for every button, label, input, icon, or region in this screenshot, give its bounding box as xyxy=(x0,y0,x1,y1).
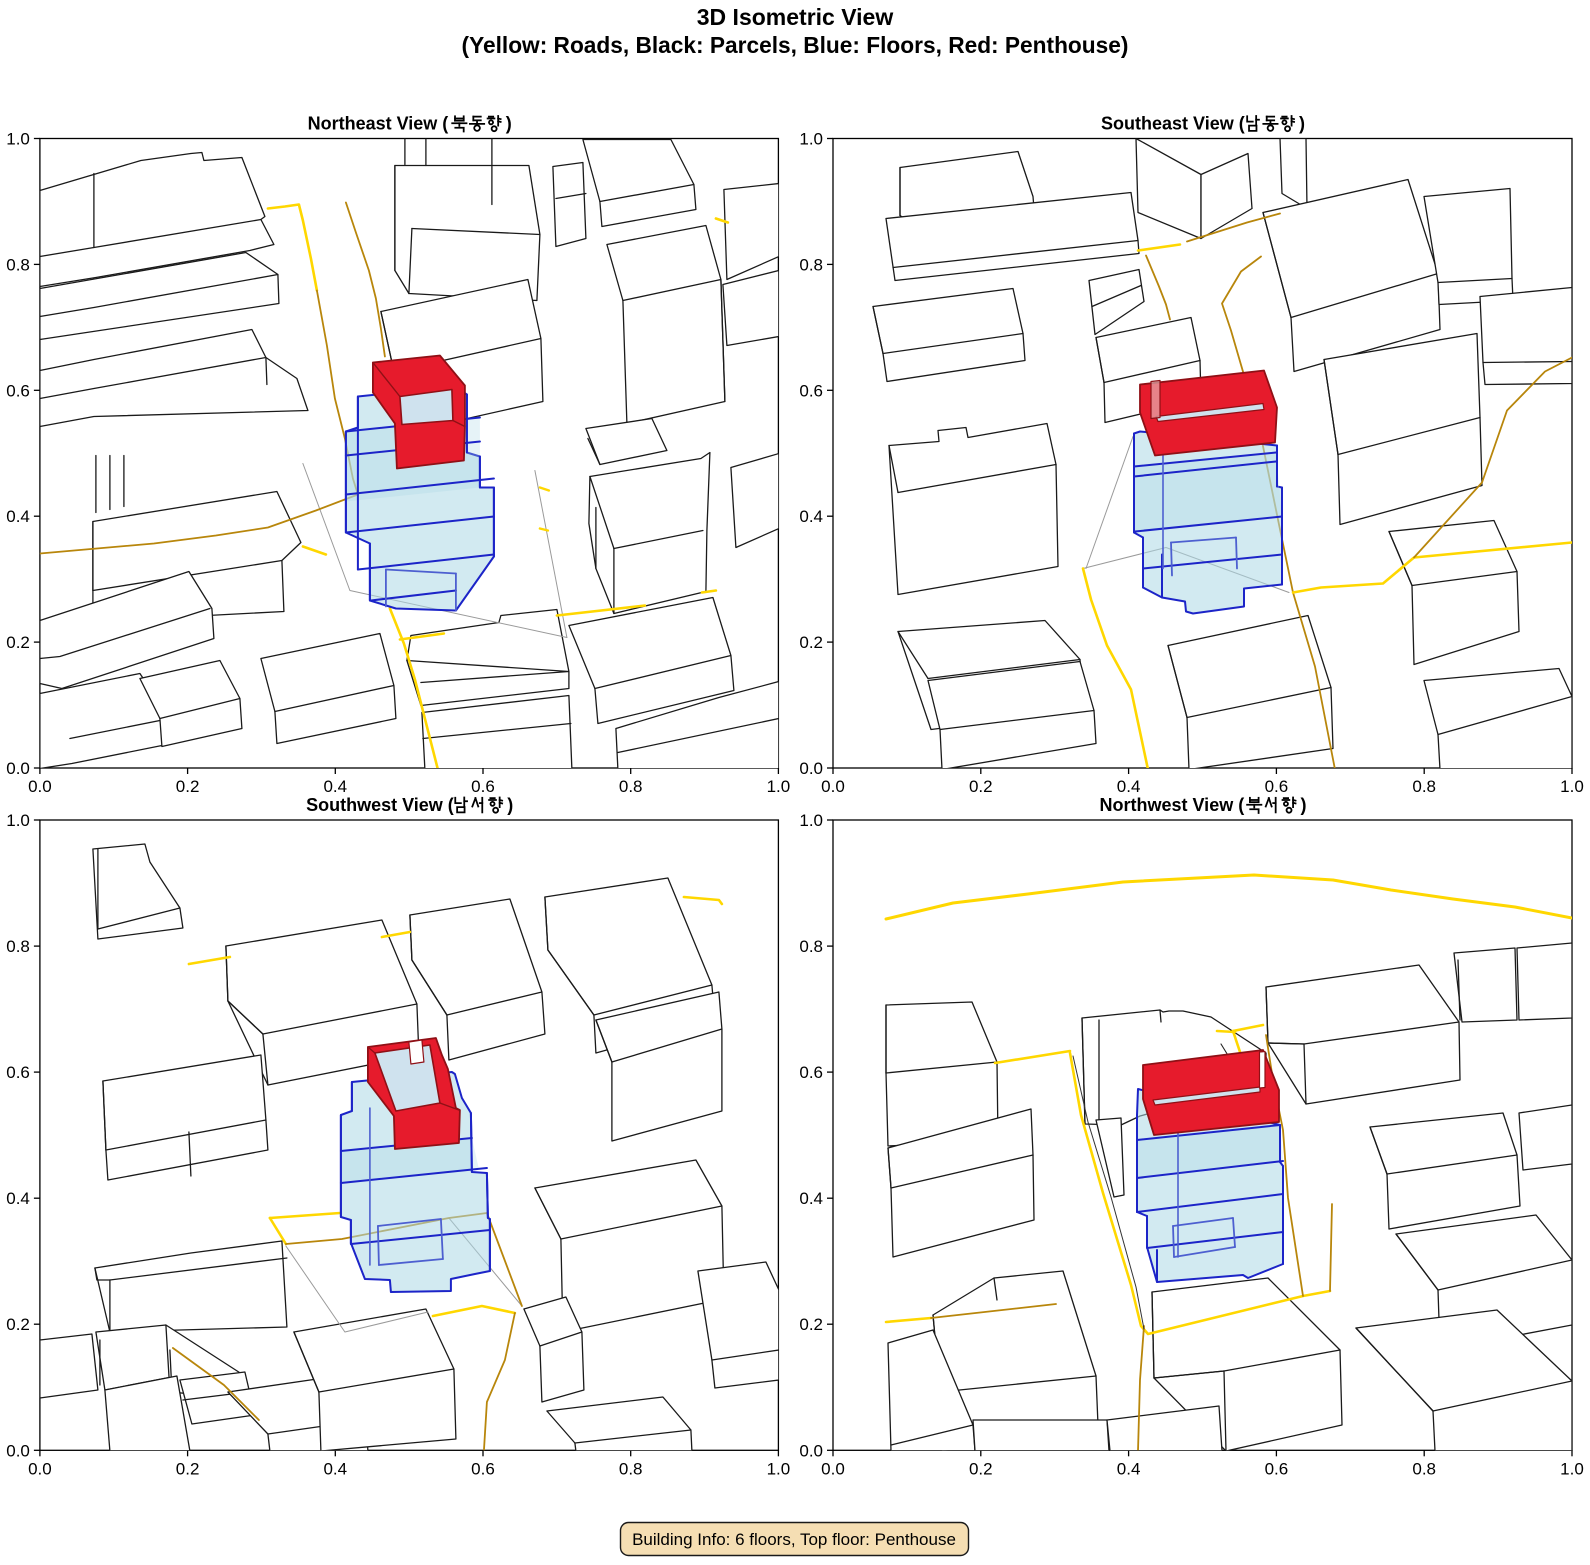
svg-text:Northeast View (: Northeast View ( xyxy=(308,114,449,134)
svg-text:1.0: 1.0 xyxy=(6,811,30,830)
svg-text:0.2: 0.2 xyxy=(799,1315,823,1334)
svg-text:Southwest View (: Southwest View ( xyxy=(306,795,454,815)
svg-text:): ) xyxy=(507,795,513,815)
svg-text:0.2: 0.2 xyxy=(969,777,993,796)
svg-text:0.6: 0.6 xyxy=(6,1063,30,1082)
svg-text:0.6: 0.6 xyxy=(799,381,823,400)
svg-text:0.0: 0.0 xyxy=(799,1441,823,1460)
svg-text:Northwest View (: Northwest View ( xyxy=(1100,795,1245,815)
svg-text:Building Info: 6 floors, Top f: Building Info: 6 floors, Top floor: Pent… xyxy=(632,1530,956,1549)
svg-text:0.8: 0.8 xyxy=(619,1459,643,1478)
svg-text:0.0: 0.0 xyxy=(28,1459,52,1478)
svg-text:0.0: 0.0 xyxy=(28,777,52,796)
svg-text:0.2: 0.2 xyxy=(6,633,30,652)
svg-text:3D Isometric View: 3D Isometric View xyxy=(697,4,894,30)
svg-text:0.4: 0.4 xyxy=(6,507,30,526)
svg-text:Southeast View (: Southeast View ( xyxy=(1101,114,1245,134)
svg-text:0.2: 0.2 xyxy=(176,1459,200,1478)
svg-text:0.4: 0.4 xyxy=(799,1189,823,1208)
svg-text:0.0: 0.0 xyxy=(799,759,823,778)
svg-text:0.8: 0.8 xyxy=(1412,777,1436,796)
svg-text:0.0: 0.0 xyxy=(821,1459,845,1478)
svg-text:0.8: 0.8 xyxy=(6,937,30,956)
svg-text:0.2: 0.2 xyxy=(6,1315,30,1334)
svg-text:0.0: 0.0 xyxy=(821,777,845,796)
svg-text:0.4: 0.4 xyxy=(323,777,347,796)
svg-text:): ) xyxy=(1301,795,1307,815)
svg-text:0.6: 0.6 xyxy=(799,1063,823,1082)
svg-text:1.0: 1.0 xyxy=(799,130,823,149)
svg-text:0.0: 0.0 xyxy=(6,1441,30,1460)
svg-text:0.2: 0.2 xyxy=(799,633,823,652)
svg-text:0.8: 0.8 xyxy=(1412,1459,1436,1478)
svg-text:1.0: 1.0 xyxy=(6,130,30,149)
svg-text:0.4: 0.4 xyxy=(1117,1459,1141,1478)
svg-text:0.2: 0.2 xyxy=(969,1459,993,1478)
svg-text:1.0: 1.0 xyxy=(799,811,823,830)
svg-text:0.8: 0.8 xyxy=(799,255,823,274)
svg-text:0.6: 0.6 xyxy=(6,381,30,400)
svg-text:1.0: 1.0 xyxy=(767,1459,791,1478)
svg-text:0.4: 0.4 xyxy=(323,1459,347,1478)
svg-text:1.0: 1.0 xyxy=(1560,777,1584,796)
svg-text:0.4: 0.4 xyxy=(1117,777,1141,796)
svg-text:0.8: 0.8 xyxy=(799,937,823,956)
svg-text:0.6: 0.6 xyxy=(471,1459,495,1478)
svg-text:0.6: 0.6 xyxy=(471,777,495,796)
svg-text:0.4: 0.4 xyxy=(6,1189,30,1208)
svg-text:0.6: 0.6 xyxy=(1265,777,1289,796)
svg-text:): ) xyxy=(506,114,512,134)
svg-text:0.6: 0.6 xyxy=(1265,1459,1289,1478)
svg-text:): ) xyxy=(1299,114,1305,134)
svg-text:0.8: 0.8 xyxy=(619,777,643,796)
svg-text:0.0: 0.0 xyxy=(6,759,30,778)
svg-text:(Yellow: Roads, Black: Parcels: (Yellow: Roads, Black: Parcels, Blue: Fl… xyxy=(462,32,1129,58)
svg-text:1.0: 1.0 xyxy=(767,777,791,796)
svg-text:0.2: 0.2 xyxy=(176,777,200,796)
svg-text:0.4: 0.4 xyxy=(799,507,823,526)
svg-text:0.8: 0.8 xyxy=(6,255,30,274)
svg-text:1.0: 1.0 xyxy=(1560,1459,1584,1478)
